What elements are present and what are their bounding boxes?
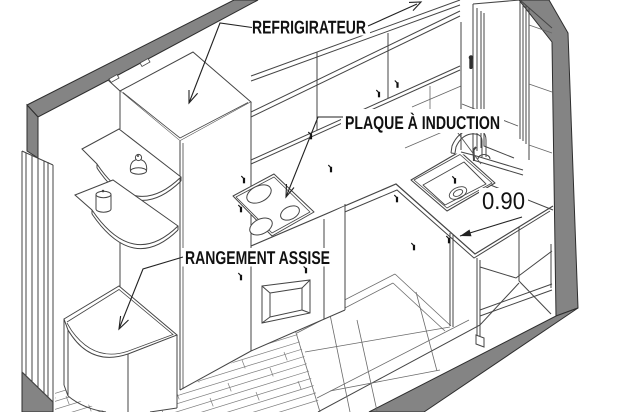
svg-text:RANGEMENT ASSISE: RANGEMENT ASSISE — [185, 247, 330, 268]
svg-text:PLAQUE À INDUCTION: PLAQUE À INDUCTION — [345, 112, 500, 133]
svg-text:0.90: 0.90 — [482, 188, 525, 215]
svg-text:REFRIGIRATEUR: REFRIGIRATEUR — [252, 17, 366, 38]
